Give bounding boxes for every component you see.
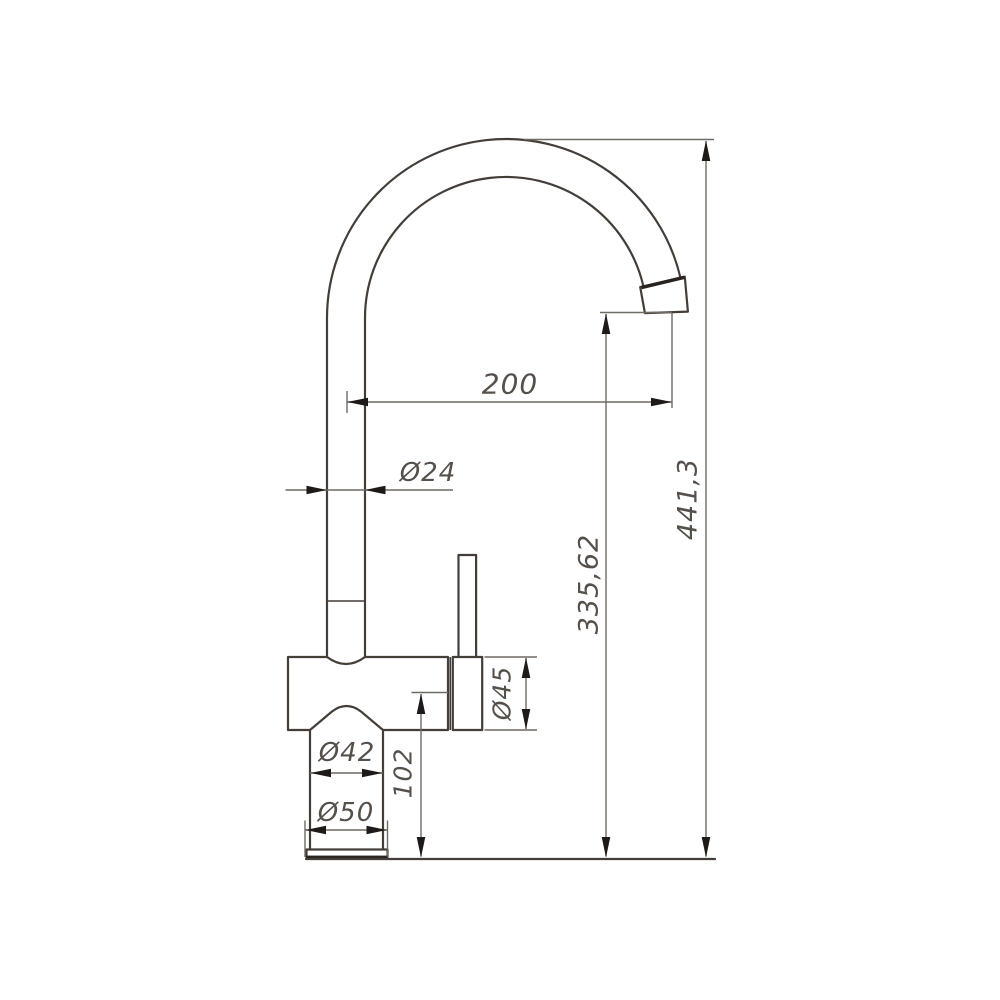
drawing-canvas	[0, 0, 1000, 1000]
arrowhead-bottom	[522, 709, 531, 730]
dimension-body-diameter	[310, 769, 383, 778]
mixer-body	[288, 657, 448, 730]
dim-label-tube-diameter: Ø24	[400, 458, 457, 488]
dim-label-housing-diameter: Ø45	[488, 666, 517, 721]
arrowhead-bottom	[602, 837, 611, 858]
dim-label-body-diameter: Ø42	[319, 738, 376, 768]
arrowhead-top	[602, 314, 611, 335]
dim-label-spout-reach: 200	[482, 368, 538, 401]
arrowhead-right	[365, 486, 386, 495]
dim-label-outlet-height: 335,62	[574, 534, 605, 634]
arrowhead-left	[347, 398, 368, 407]
arrowhead-left	[307, 486, 328, 495]
arrowhead-top	[702, 141, 711, 162]
arrowhead-left	[311, 769, 332, 778]
arrowhead-bottom	[702, 837, 711, 858]
arrowhead-bottom	[417, 837, 426, 858]
dim-label-overall-height: 441,3	[673, 458, 704, 540]
dim-label-base-diameter: Ø50	[318, 798, 375, 828]
dim-label-body-height: 102	[389, 748, 418, 799]
faucet-technical-drawing: 200 Ø24 441,3 335,62 Ø45 102 Ø42 Ø50	[0, 0, 1000, 1000]
arrowhead-right	[651, 398, 672, 407]
arrowhead-right	[362, 769, 383, 778]
handle-lever	[459, 555, 477, 658]
handle-housing	[453, 657, 482, 730]
arrowhead-top	[522, 658, 531, 679]
dimension-outlet-height	[600, 313, 672, 858]
